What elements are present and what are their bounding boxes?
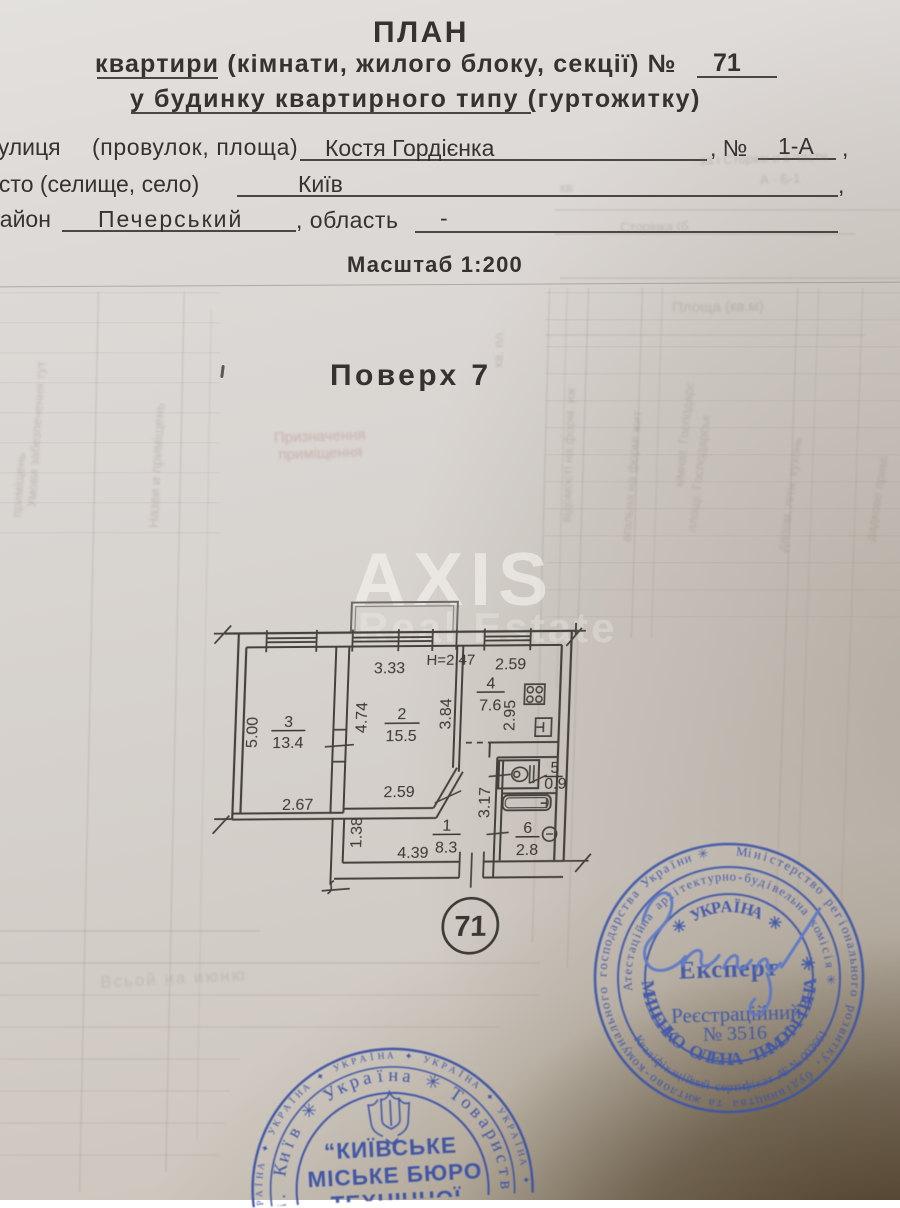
svg-text:г: г: [596, 995, 612, 1003]
svg-text:о: о: [849, 974, 864, 981]
svg-text:т: т: [494, 1166, 515, 1177]
svg-text:Р: Р: [256, 1200, 267, 1206]
svg-text:Н: Н: [377, 1052, 385, 1063]
svg-text:ь: ь: [847, 957, 863, 965]
svg-text:2: 2: [397, 706, 407, 723]
svg-text:-: -: [738, 870, 744, 884]
svg-text:А: А: [447, 1065, 458, 1077]
svg-text:я: я: [822, 961, 837, 969]
svg-text:т: т: [716, 1097, 723, 1112]
svg-text:г: г: [595, 971, 610, 977]
svg-text:А: А: [387, 1051, 394, 1061]
svg-text:✳: ✳: [763, 911, 786, 935]
svg-text:✦: ✦: [520, 1176, 532, 1185]
svg-text:2.59: 2.59: [383, 784, 415, 801]
svg-text:А: А: [720, 897, 733, 916]
svg-text:н: н: [753, 846, 763, 862]
svg-text:К: К: [341, 1059, 351, 1071]
svg-text:Ї: Ї: [369, 1051, 374, 1063]
svg-text:2.59: 2.59: [495, 656, 527, 673]
svg-text:6: 6: [523, 820, 533, 837]
svg-text:3.33: 3.33: [374, 660, 406, 677]
svg-text:✦: ✦: [259, 1143, 272, 1154]
svg-text:7.6: 7.6: [479, 697, 502, 714]
svg-text:А: А: [255, 1190, 265, 1197]
svg-text:А: А: [799, 977, 820, 991]
svg-text:✳: ✳: [298, 1099, 323, 1124]
svg-text:✦: ✦: [404, 1051, 413, 1063]
svg-text:У: У: [422, 1055, 431, 1066]
svg-text:3: 3: [284, 714, 294, 731]
svg-text:К: К: [431, 1058, 441, 1070]
svg-text:й: й: [702, 1077, 712, 1092]
svg-text:с: с: [491, 1152, 512, 1165]
svg-text:А: А: [281, 1102, 293, 1114]
svg-text:8.3: 8.3: [435, 840, 458, 857]
svg-text:е: е: [621, 968, 635, 975]
svg-text:5.00: 5.00: [244, 717, 262, 748]
svg-text:с: с: [819, 945, 834, 955]
svg-text:71: 71: [454, 911, 487, 943]
svg-text:Ї: Ї: [512, 1140, 524, 1147]
svg-text:н: н: [388, 1066, 398, 1086]
svg-text:№ 3516: № 3516: [703, 1022, 768, 1046]
svg-text:н: н: [848, 965, 863, 973]
svg-text:4.74: 4.74: [353, 702, 371, 733]
svg-text:р: р: [347, 1072, 362, 1094]
svg-text:✳: ✳: [823, 974, 837, 985]
svg-text:✳: ✳: [798, 954, 820, 972]
svg-text:2.67: 2.67: [282, 797, 314, 814]
svg-text:5: 5: [550, 760, 560, 777]
svg-text:м: м: [271, 1202, 293, 1208]
svg-text:0.9: 0.9: [544, 776, 567, 793]
svg-text:А: А: [620, 982, 635, 992]
svg-text:р: р: [714, 870, 722, 885]
svg-text:і: і: [821, 954, 836, 961]
svg-text:А: А: [729, 1048, 744, 1069]
svg-text:н: н: [722, 869, 729, 883]
svg-text:3.17: 3.17: [476, 787, 494, 818]
svg-text:✳: ✳: [422, 1071, 444, 1095]
svg-text:H=2.47: H=2.47: [426, 652, 475, 669]
svg-text:15.5: 15.5: [385, 728, 417, 745]
svg-text:Н: Н: [514, 1148, 526, 1157]
svg-text:Р: Р: [350, 1057, 358, 1068]
svg-text:в: в: [284, 1124, 306, 1142]
svg-text:т: т: [620, 976, 634, 982]
svg-text:Н: Н: [255, 1172, 266, 1180]
svg-text:.: .: [270, 1194, 290, 1200]
svg-text:о: о: [595, 962, 611, 970]
svg-text:ї: ї: [376, 1066, 384, 1087]
svg-text:А: А: [256, 1162, 267, 1171]
svg-text:о: о: [730, 869, 737, 883]
svg-text:3.84: 3.84: [437, 698, 455, 729]
svg-text:4.39: 4.39: [397, 845, 429, 862]
svg-text:а: а: [707, 1096, 715, 1112]
svg-text:Ї: Ї: [253, 1183, 265, 1187]
svg-text:и: и: [273, 1150, 295, 1165]
svg-text:т: т: [747, 1095, 756, 1111]
svg-text:К: К: [518, 1204, 529, 1208]
svg-text:4: 4: [486, 675, 496, 692]
svg-text:2.95: 2.95: [501, 700, 519, 731]
svg-text:Р: Р: [504, 1123, 515, 1132]
svg-text:в: в: [495, 1180, 515, 1190]
svg-text:1: 1: [442, 818, 452, 835]
svg-text:а: а: [401, 1066, 412, 1087]
svg-text:о: о: [847, 989, 863, 997]
svg-text:Р: Р: [439, 1061, 448, 1072]
svg-text:1.38: 1.38: [348, 817, 366, 848]
svg-text:13.4: 13.4: [272, 735, 304, 752]
svg-text:А: А: [508, 1131, 520, 1141]
svg-text:А: А: [517, 1157, 528, 1166]
svg-text:г: г: [848, 982, 863, 988]
svg-text:2.8: 2.8: [516, 842, 539, 859]
svg-text:в: в: [740, 1096, 748, 1112]
svg-text:а: а: [361, 1068, 374, 1089]
svg-text:а: а: [732, 1097, 739, 1112]
svg-text:✳: ✳: [696, 845, 710, 862]
svg-text:о: о: [595, 986, 611, 994]
svg-text:А: А: [359, 1054, 368, 1065]
